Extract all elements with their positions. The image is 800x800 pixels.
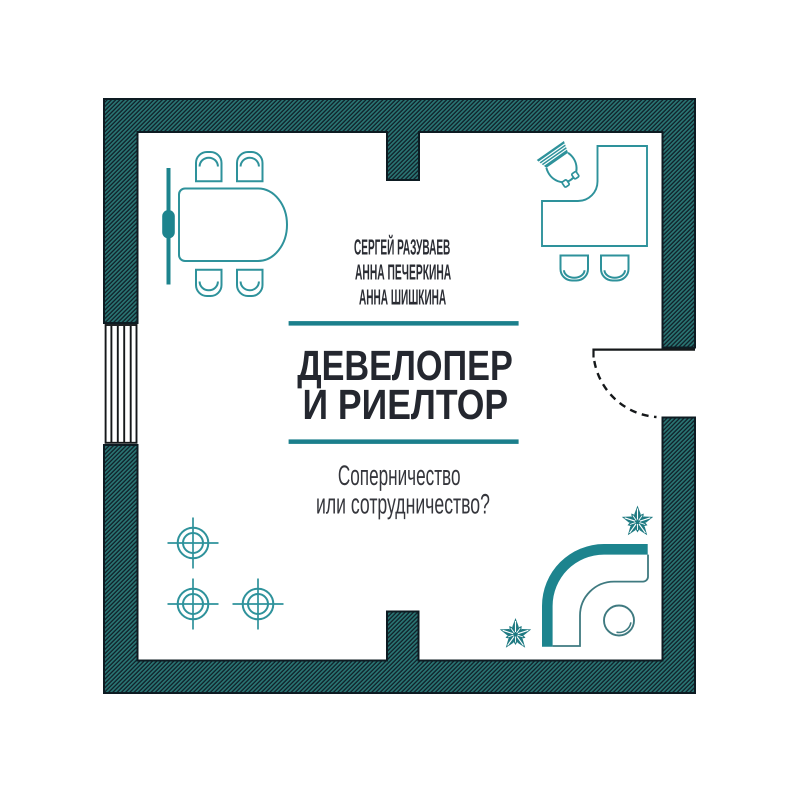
svg-text:И РИЕЛТОР: И РИЕЛТОР [303,381,509,428]
svg-text:или сотрудничество?: или сотрудничество? [316,488,490,520]
svg-text:СЕРГЕЙ РАЗУВАЕВ: СЕРГЕЙ РАЗУВАЕВ [354,234,450,259]
svg-text:Соперничество: Соперничество [338,459,461,491]
svg-text:АННА ШИШКИНА: АННА ШИШКИНА [359,284,446,309]
svg-text:АННА ПЕЧЕРКИНА: АННА ПЕЧЕРКИНА [355,259,451,284]
